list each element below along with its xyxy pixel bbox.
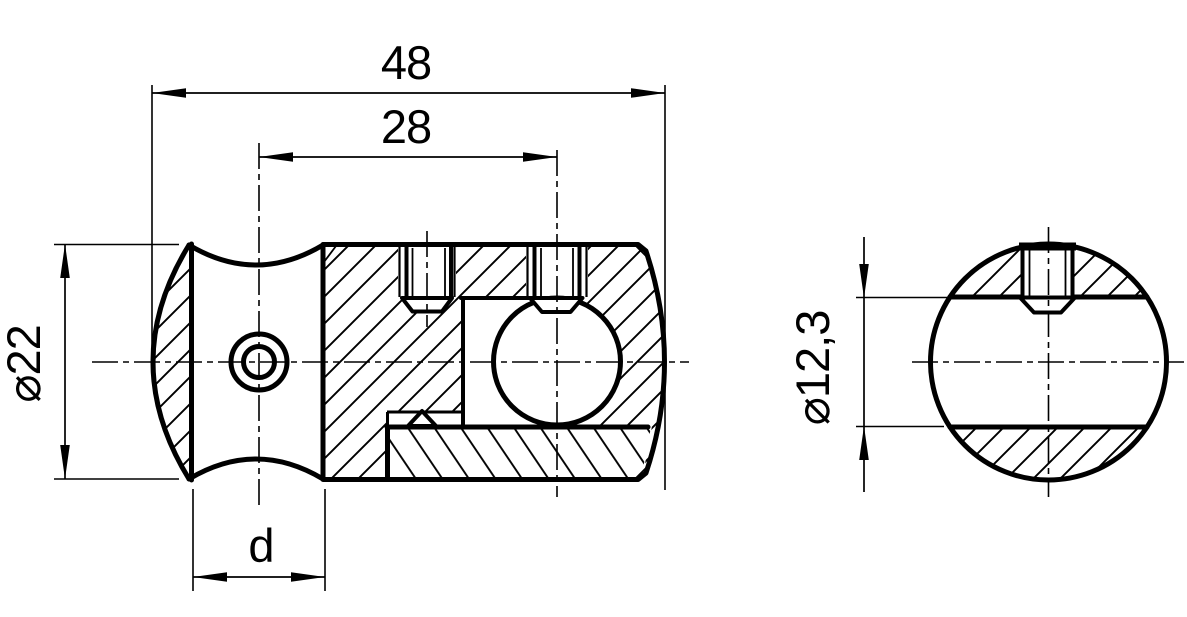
technical-drawing: 48 28 ⌀22 d ⌀12,3: [0, 0, 1187, 617]
drawing-canvas: 48 28 ⌀22 d ⌀12,3: [0, 0, 1187, 617]
dim-label-48: 48: [381, 36, 431, 89]
dim-label-28: 28: [381, 100, 431, 153]
jaw-strip-hatch: [388, 427, 651, 479]
dim-label-d: d: [248, 519, 273, 572]
dim-label-dia22: ⌀22: [0, 325, 50, 403]
dim-label-dia123: ⌀12,3: [786, 311, 839, 426]
